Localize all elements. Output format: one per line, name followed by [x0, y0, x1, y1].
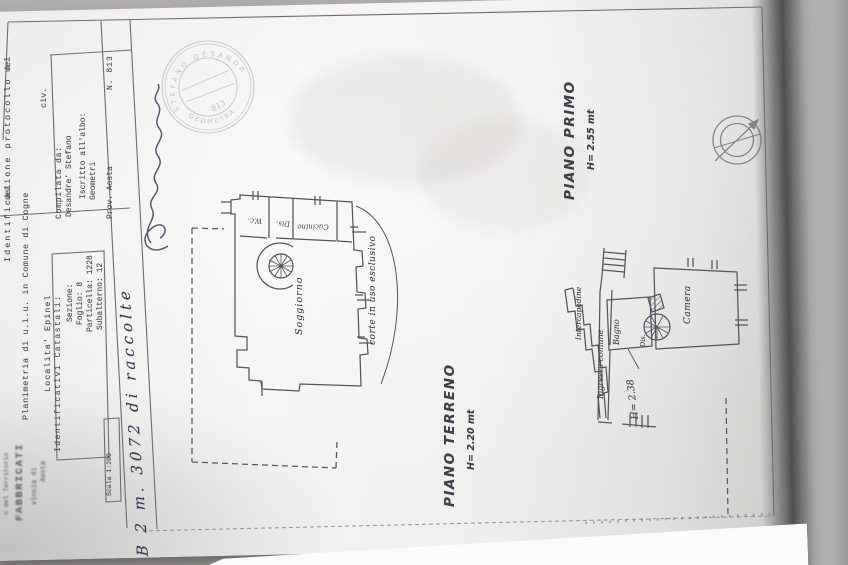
room-label-bagno: Bagno: [613, 319, 621, 345]
corte-label: corte in uso esclusivo: [369, 236, 378, 345]
provincia-value: Prov. Aosta: [107, 166, 115, 219]
room-label-camera: Camera: [684, 285, 693, 324]
iscritto-label: Iscritto all'albo:: [80, 113, 88, 199]
compilata-nome: Desandre' Stefano: [66, 135, 74, 217]
scala-label: Scala 1:200: [107, 453, 114, 496]
terreno-height: H= 2.20 mt: [467, 410, 477, 470]
surveyor-stamp: STEFANO DESANDRE GEOMETRA 813: [145, 24, 271, 150]
protocollo-del-2: del: [4, 57, 13, 72]
protocollo-del-1: del: [4, 185, 13, 200]
signature-stroke: [145, 84, 168, 250]
catastali-sezione: Sezione:: [67, 284, 75, 322]
albo-numero: N. 813: [107, 55, 115, 90]
civ-label: civ.: [40, 88, 49, 108]
compilata-da-label: Compilata da:: [56, 146, 64, 219]
north-arrow-icon: [713, 116, 761, 164]
ufficio-print-line2: FABBRICATI: [15, 443, 26, 521]
planimetria-line: Planimetria di u.i.u. in Comune di Cogne: [22, 192, 31, 420]
floorplan-linework: STEFANO DESANDRE GEOMETRA 813: [0, 0, 848, 565]
room-label-cucinino: Cucinino: [297, 223, 329, 230]
primo-height: H= 2.55 mt: [587, 110, 597, 170]
catastali-subalterno: Subalterno: 12: [97, 263, 105, 330]
catastali-title: Identificativi Catastali:: [55, 294, 63, 452]
room-label-ingresso: Ingresso comune: [597, 330, 605, 399]
form-border: [0, 7, 774, 531]
room-label-dis-terreno: Dis.: [276, 220, 290, 227]
scanned-cadastral-plan: STEFANO DESANDRE GEOMETRA 813 Identifica…: [0, 0, 848, 565]
ufficio-print-line3: vincia di: [32, 467, 39, 505]
albo-value: Geometri: [90, 162, 98, 200]
ufficio-print-line4: Aosta: [41, 461, 48, 482]
terreno-title: PIANO TERRENO: [444, 363, 458, 507]
room-label-soggiorno: Soggiorno: [295, 276, 305, 335]
primo-title: PIANO PRIMO: [564, 80, 578, 200]
primo-outline: [565, 248, 748, 515]
ufficio-print-line1: o del Territorio: [4, 453, 11, 515]
protocollo-label: Identificazione protocollo n.: [4, 56, 13, 262]
room-label-intercapedine: Intercapedine: [575, 287, 583, 340]
room-label-dis-primo: Dis.: [640, 334, 647, 347]
localita-line: Localita' Epinel: [44, 294, 53, 392]
catastali-particella: Particella: 1228: [87, 255, 95, 332]
catastali-foglio: Foglio: 8: [77, 282, 85, 325]
room-label-wc: W.c.: [248, 217, 262, 224]
